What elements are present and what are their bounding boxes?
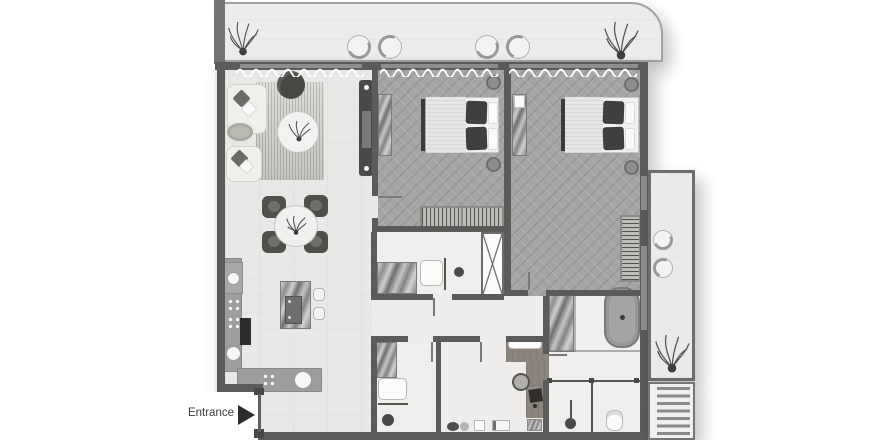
bedroom1-corner-plant-icon bbox=[486, 157, 501, 172]
curtain-wave bbox=[380, 68, 498, 77]
wall-bath1-bottom-b bbox=[452, 294, 504, 300]
partition-post bbox=[589, 378, 594, 383]
terrace-chair bbox=[347, 35, 371, 59]
bedroom2-corner-plant-icon bbox=[624, 77, 639, 92]
entrance-arrow-icon bbox=[238, 405, 255, 425]
wall-bed1-bed2 bbox=[504, 70, 511, 296]
terrace-chair bbox=[475, 35, 499, 59]
dining-centerpiece-plant-icon bbox=[284, 214, 308, 238]
wall-living-bed1 bbox=[372, 70, 378, 196]
bed2-blanket bbox=[565, 97, 603, 153]
wall-bath1-left bbox=[371, 232, 377, 296]
wall-bottom bbox=[255, 432, 648, 440]
shower-partition-vertical bbox=[591, 380, 593, 432]
bathtub bbox=[604, 287, 640, 348]
balcony-plant-icon bbox=[653, 332, 691, 374]
wall-bath2-left bbox=[371, 342, 377, 432]
wall-left bbox=[217, 62, 225, 386]
bedroom2-wardrobe bbox=[620, 215, 641, 282]
shelf-leaf-dish bbox=[447, 422, 459, 431]
bed1-blanket bbox=[426, 97, 466, 153]
stove-burners bbox=[262, 373, 277, 387]
kitchen-sink-round bbox=[227, 272, 240, 285]
bedroom2-dresser-box bbox=[514, 95, 525, 108]
wall-bed1-bath1 bbox=[375, 226, 506, 232]
bath1-shower-pan bbox=[377, 262, 417, 294]
laptop bbox=[528, 385, 543, 403]
door-leaf-study bbox=[480, 342, 482, 362]
terrace bbox=[219, 2, 663, 62]
stove-burners bbox=[227, 316, 240, 331]
master-shower-glass bbox=[574, 292, 576, 352]
bar-stool bbox=[313, 288, 325, 301]
bath1-shower-pole bbox=[444, 258, 446, 290]
balcony-chair bbox=[653, 230, 673, 250]
wall-corridor-bottom-c bbox=[506, 336, 543, 342]
shelf-box bbox=[474, 420, 485, 431]
terrace-chair bbox=[506, 35, 530, 59]
bed1-pillow bbox=[466, 101, 488, 125]
plant-icon bbox=[226, 16, 260, 60]
bath1-shower-head bbox=[454, 267, 464, 277]
door-leaf-bed2 bbox=[528, 272, 530, 290]
bed2-pillow bbox=[603, 127, 625, 151]
door-leaf-bath1 bbox=[433, 298, 435, 316]
door-leaf-bath2 bbox=[431, 342, 433, 362]
tv-panel bbox=[362, 111, 371, 148]
bed2-pillow-white bbox=[625, 128, 635, 150]
shelf-bowl bbox=[460, 422, 469, 431]
terrace-left-wall bbox=[214, 0, 225, 64]
wardrobe-divider bbox=[461, 206, 463, 228]
bed2-pillow-white bbox=[625, 102, 635, 124]
door-leaf-masterbath bbox=[549, 354, 567, 356]
bar-stool bbox=[313, 307, 325, 320]
desk-dot bbox=[533, 404, 537, 408]
window-right-wall-upper bbox=[641, 176, 647, 210]
window-right-wall-lower bbox=[641, 246, 647, 330]
entrance-label: Entrance bbox=[182, 407, 234, 421]
entrance-door-leaf bbox=[258, 394, 261, 432]
bed2-pillow bbox=[603, 101, 625, 125]
balcony-chair bbox=[653, 258, 673, 278]
wall-bath2-study bbox=[436, 342, 441, 432]
stove-burners bbox=[227, 298, 240, 311]
bath2-basin bbox=[378, 378, 407, 400]
island-dot bbox=[288, 316, 291, 319]
bedroom1-dresser bbox=[378, 94, 392, 156]
plant-icon bbox=[602, 18, 640, 62]
partition-post bbox=[634, 378, 639, 383]
bed1-pillow-white bbox=[488, 128, 498, 150]
side-table-oval bbox=[227, 123, 253, 141]
bedroom2-corner-plant-icon bbox=[624, 160, 639, 175]
console-dot bbox=[364, 166, 369, 171]
kitchen-sink-round bbox=[226, 346, 241, 361]
wall-bath1-bottom-a bbox=[371, 294, 433, 300]
shelf-panel bbox=[492, 420, 510, 431]
tub-drain bbox=[620, 315, 625, 320]
master-shower-pan bbox=[549, 292, 574, 352]
bed1-bench bbox=[421, 99, 425, 151]
oven-appliance bbox=[240, 318, 251, 345]
wall-masterbath-left-a bbox=[543, 296, 549, 354]
bed1-pillow-white bbox=[488, 102, 498, 124]
bedroom1-corner-plant-icon bbox=[486, 75, 501, 90]
wall-bed2-bottom-b bbox=[546, 290, 648, 296]
console-dot bbox=[364, 85, 369, 90]
shower-partition bbox=[549, 380, 640, 382]
coffee-table-plant-icon bbox=[286, 119, 312, 145]
wall-masterbath-left-b bbox=[543, 380, 549, 432]
kitchen-sink-round bbox=[294, 371, 312, 389]
curtain-wave bbox=[509, 68, 637, 77]
island-dot bbox=[288, 300, 291, 303]
louver-unit bbox=[648, 382, 695, 440]
door-leaf-bed1 bbox=[378, 196, 402, 198]
bath2-towel-rail bbox=[378, 403, 408, 405]
bath2-shower-pan bbox=[374, 342, 397, 378]
service-shaft bbox=[481, 232, 504, 296]
master-bath-glass-line bbox=[549, 350, 640, 352]
floor-plan: Entrance bbox=[0, 0, 890, 440]
bath2-shower-head bbox=[382, 414, 394, 426]
terrace-chair bbox=[378, 35, 402, 59]
bed1-pillow bbox=[466, 127, 488, 151]
toilet bbox=[606, 410, 623, 431]
bath1-basin bbox=[420, 260, 443, 286]
curtain-wave bbox=[236, 68, 364, 77]
master-shower-pole bbox=[570, 400, 572, 420]
wall-bed2-bottom-a bbox=[511, 290, 528, 296]
shelf-marble-tray bbox=[527, 419, 542, 431]
